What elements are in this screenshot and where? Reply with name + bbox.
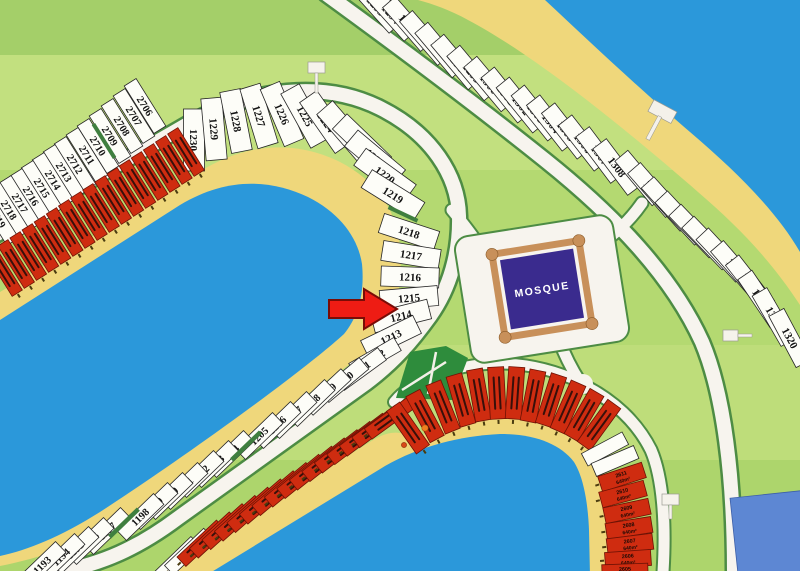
community-plot-map: 2706270727082709271027112712271327142715… [0,0,800,571]
plot-sold [488,367,507,425]
plot-2605: 2605640m² [597,563,649,571]
plot-number: 1216 [399,271,422,284]
site-plan-svg: 2706270727082709271027112712271327142715… [0,0,800,571]
plot-1216[interactable]: 1216 [381,266,440,288]
plot-number: 2605 [619,567,631,571]
plot-number: 1229 [206,118,220,141]
blue-building [730,490,800,571]
